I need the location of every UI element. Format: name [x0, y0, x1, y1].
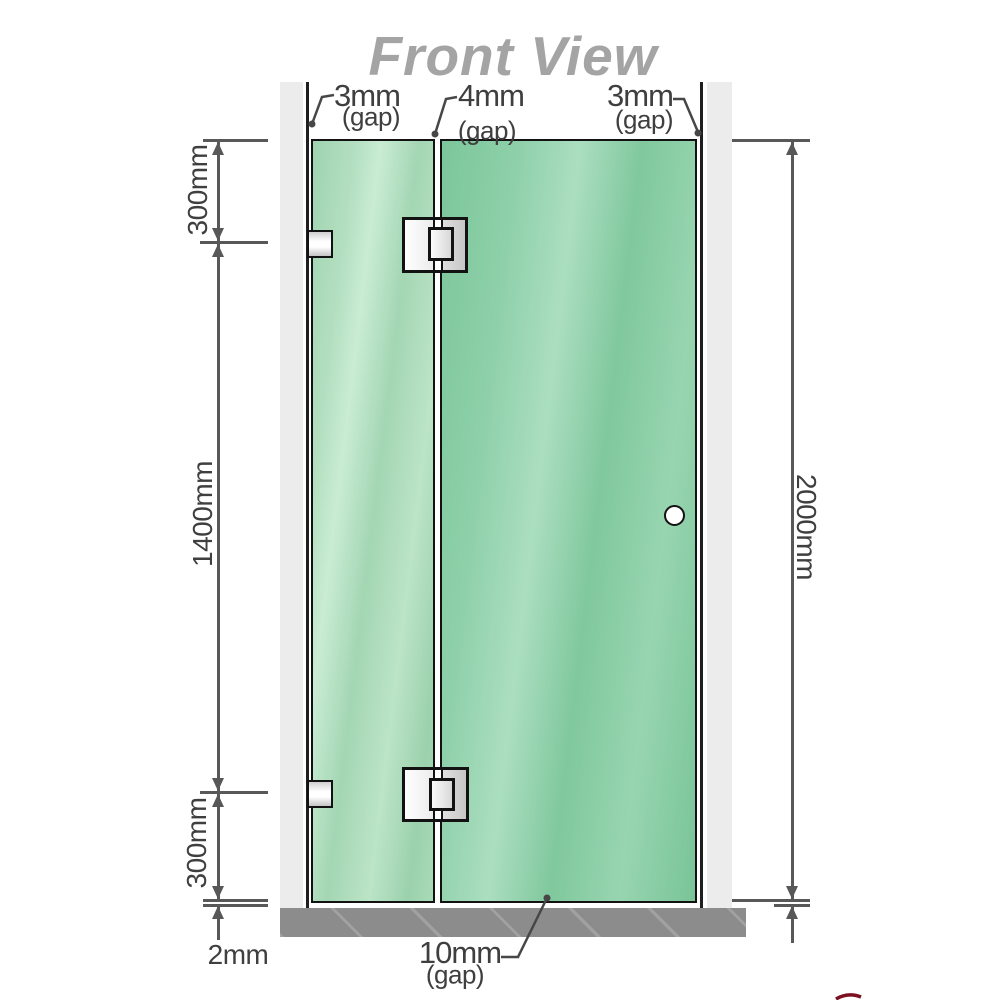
arrow-down	[212, 778, 224, 791]
gap-label-4mm: 4mm	[458, 78, 524, 114]
arrow-down	[212, 886, 224, 899]
hinge-clamp-bottom	[429, 778, 455, 811]
leader-3mm-right	[673, 99, 698, 132]
front-view-diagram: Front View 300mm 1400mm 300mm 2mm	[0, 0, 1000, 1000]
arrow-up	[786, 906, 798, 919]
dim-tick	[732, 139, 810, 142]
arrow-down	[786, 886, 798, 899]
hinge-top	[402, 217, 468, 273]
gap-suffix-right: (gap)	[615, 105, 673, 136]
leader-4mm	[435, 97, 457, 134]
arrow-up	[212, 244, 224, 257]
frame-line-right	[700, 82, 703, 908]
arrow-up	[212, 794, 224, 807]
hinge-bottom	[402, 767, 469, 822]
wall-bracket-top	[307, 230, 333, 258]
door-handle	[664, 505, 685, 526]
wall-bracket-bottom	[307, 780, 333, 808]
logo-fragment-red	[836, 995, 861, 999]
wall-channel-right	[707, 82, 732, 908]
leader-3mm-left	[312, 95, 334, 124]
dim-label-300-bottom: 300mm	[181, 798, 213, 889]
dim-tick	[200, 791, 268, 794]
gap-suffix-middle: (gap)	[458, 116, 516, 147]
dim-tick	[203, 899, 268, 902]
wall-channel-left	[280, 82, 303, 908]
leader-dot	[309, 121, 316, 128]
dim-tick	[200, 241, 268, 244]
dim-label-2mm: 2mm	[208, 939, 269, 971]
dim-label-300-top: 300mm	[182, 145, 214, 236]
gap-suffix-left: (gap)	[342, 102, 400, 133]
arrow-up	[212, 906, 224, 919]
gap-suffix-bottom: (gap)	[426, 960, 484, 991]
floor	[280, 908, 746, 937]
leader-dot	[432, 131, 439, 138]
dim-label-1400: 1400mm	[187, 461, 219, 567]
door-glass-panel	[440, 139, 697, 903]
dim-tick	[732, 899, 810, 902]
dim-label-2000: 2000mm	[790, 474, 822, 580]
arrow-up	[786, 142, 798, 155]
hinge-clamp-top	[428, 227, 454, 261]
